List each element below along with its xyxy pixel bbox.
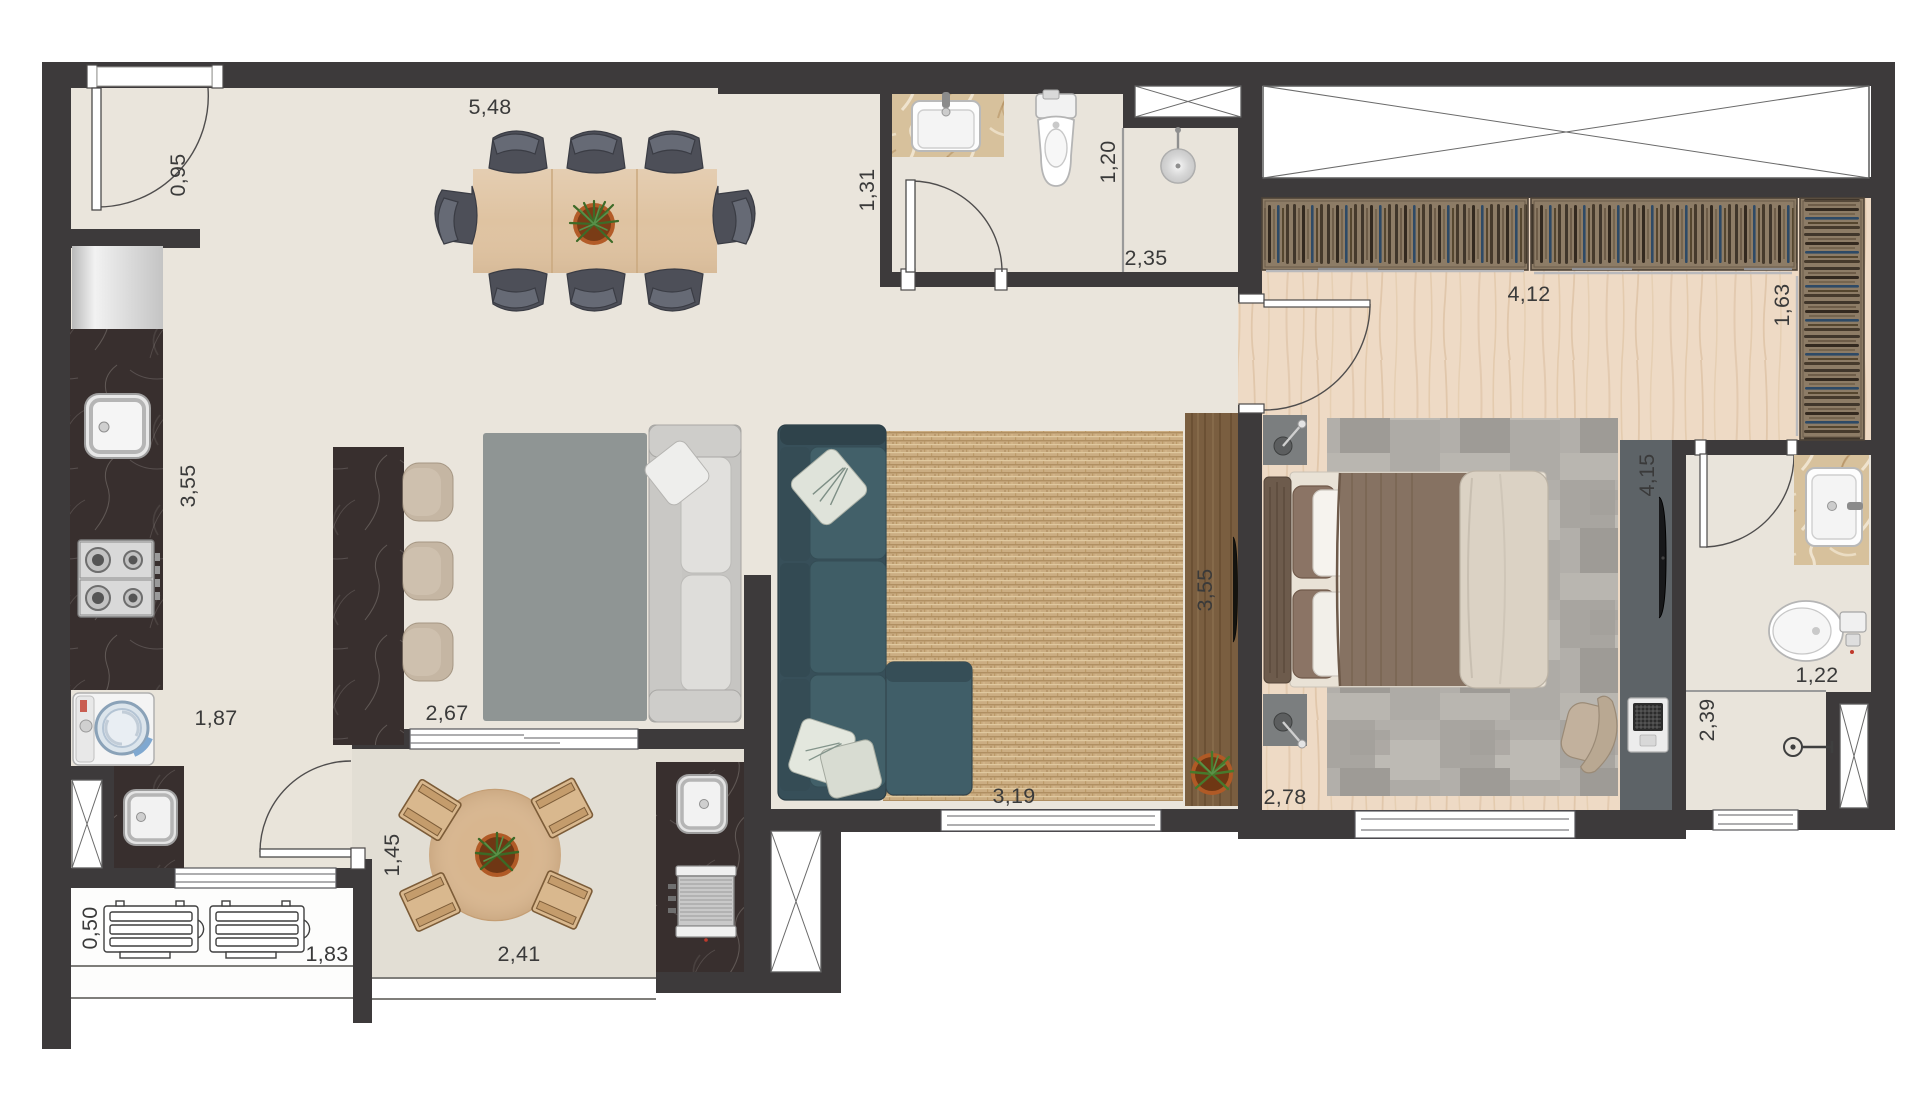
svg-text:4,15: 4,15: [1635, 453, 1659, 496]
svg-text:2,39: 2,39: [1695, 698, 1719, 741]
svg-text:3,55: 3,55: [176, 464, 200, 507]
svg-text:1,45: 1,45: [380, 833, 404, 876]
svg-text:1,20: 1,20: [1096, 140, 1120, 183]
svg-text:0,50: 0,50: [78, 906, 102, 949]
svg-text:1,87: 1,87: [194, 706, 237, 730]
svg-text:5,48: 5,48: [468, 95, 511, 119]
svg-text:1,63: 1,63: [1770, 283, 1794, 326]
svg-text:1,31: 1,31: [855, 168, 879, 211]
svg-text:1,83: 1,83: [305, 942, 348, 966]
svg-text:2,41: 2,41: [497, 942, 540, 966]
svg-text:2,67: 2,67: [425, 701, 468, 725]
svg-text:3,19: 3,19: [992, 784, 1035, 808]
svg-text:4,12: 4,12: [1507, 282, 1550, 306]
svg-text:0,95: 0,95: [166, 153, 190, 196]
svg-text:3,55: 3,55: [1193, 568, 1217, 611]
svg-text:1,22: 1,22: [1795, 663, 1838, 687]
svg-text:2,78: 2,78: [1263, 785, 1306, 809]
svg-text:2,35: 2,35: [1124, 246, 1167, 270]
